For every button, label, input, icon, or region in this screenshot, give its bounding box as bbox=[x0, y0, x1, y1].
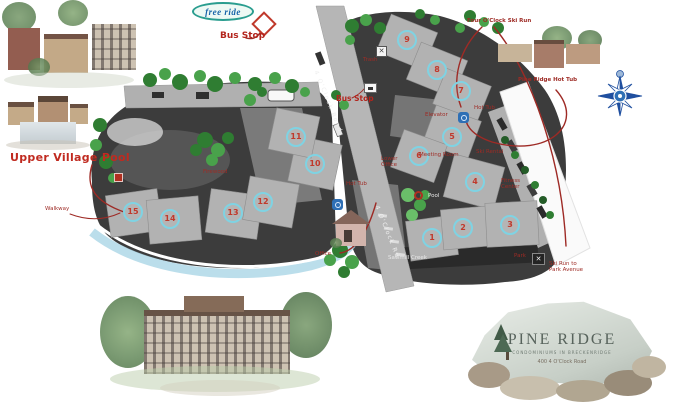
site-map-page: { "page_title": "Pine Ridge property sit… bbox=[0, 0, 680, 408]
compass-rose-icon bbox=[594, 66, 646, 120]
trash-icon: ✕ bbox=[376, 46, 387, 57]
pool-marker-icon bbox=[414, 191, 423, 200]
free-ride-logo-text: free ride bbox=[205, 7, 241, 17]
office-house-illustration bbox=[330, 206, 374, 252]
hot-tub-icon bbox=[458, 112, 469, 123]
upper-village-pool-illustration bbox=[6, 96, 90, 152]
sign-title: PINE RIDGE bbox=[508, 331, 616, 349]
park-marker-icon: ✕ bbox=[532, 253, 545, 265]
pine-ridge-sign: PINE RIDGE CONDOMINIUMS IN BRECKENRIDGE … bbox=[472, 300, 668, 406]
sign-address: 400 4 O'Clock Road bbox=[538, 359, 587, 365]
sign-subtitle: CONDOMINIUMS IN BRECKENRIDGE bbox=[512, 350, 611, 355]
free-ride-shuttle-logo: free ride bbox=[192, 2, 254, 21]
hot-tub-icon bbox=[332, 199, 343, 210]
walkway-marker-icon bbox=[114, 173, 123, 182]
upper-buildings-illustration bbox=[0, 0, 148, 92]
hot-tub-buildings-illustration bbox=[498, 26, 604, 72]
bus-stop-sign-icon bbox=[364, 83, 377, 93]
lodge-building-illustration bbox=[100, 288, 332, 402]
